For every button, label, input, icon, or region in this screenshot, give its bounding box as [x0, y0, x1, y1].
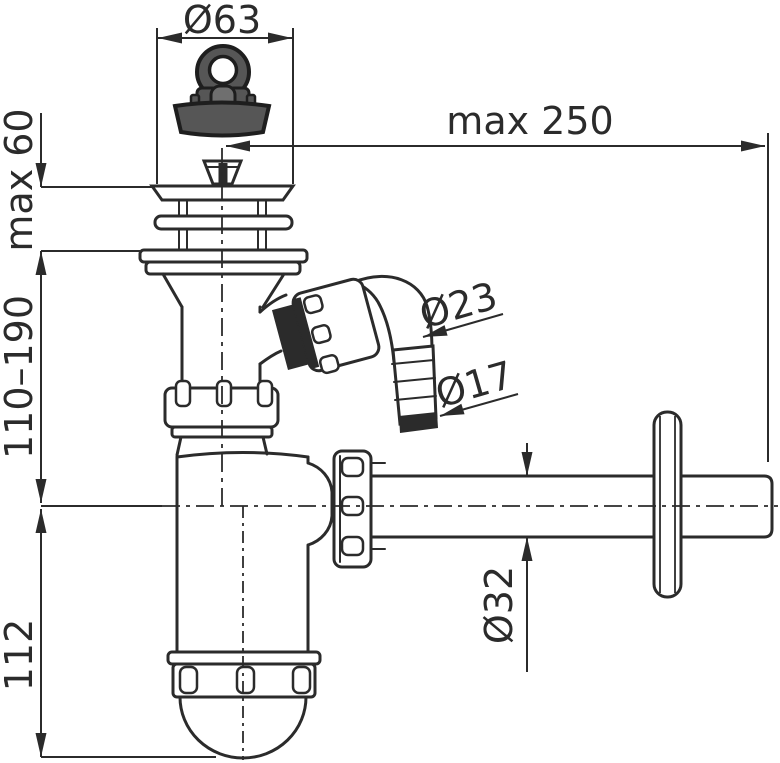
plug-body: [175, 103, 269, 136]
label-barb-diameter: Ø17: [431, 353, 518, 417]
trap-body: [177, 453, 332, 653]
hose-barb: [392, 346, 438, 433]
label-cup-height: 112: [0, 619, 41, 692]
label-height-range: 110–190: [0, 295, 41, 459]
label-plug-diameter: Ø63: [183, 0, 261, 42]
branch-nut: [270, 277, 383, 382]
label-pipe-diameter: Ø32: [477, 566, 521, 644]
sink-deck: [155, 216, 292, 229]
strainer-waste-fitting: [140, 161, 307, 307]
ring-hole: [210, 57, 237, 84]
dim-barb-diameter: Ø17: [431, 353, 518, 422]
outlet-bulge: [308, 463, 332, 545]
hose-connection: [270, 276, 438, 433]
outlet-nut: [334, 451, 371, 567]
label-wall-distance: max 250: [446, 99, 613, 143]
riser-tube: [182, 295, 286, 388]
technical-drawing-sink-trap: Ø63 max 250 max 60 110–190 112 Ø32: [0, 0, 780, 763]
drawing-canvas: Ø63 max 250 max 60 110–190 112 Ø32: [0, 0, 780, 763]
label-elbow-diameter: Ø23: [415, 274, 502, 338]
dim-wall-distance: max 250: [226, 99, 768, 462]
dim-elbow-diameter: Ø23: [415, 274, 503, 343]
wall-flange: [654, 412, 681, 597]
trap-cup: [168, 652, 320, 758]
screw-slot: [219, 163, 228, 183]
locknut-bell: [140, 250, 307, 274]
sink-plug: [175, 46, 269, 136]
cup-ring-lip: [168, 652, 320, 664]
tailpipe-funnel: [163, 274, 284, 307]
label-deck-thickness: max 60: [0, 108, 41, 251]
